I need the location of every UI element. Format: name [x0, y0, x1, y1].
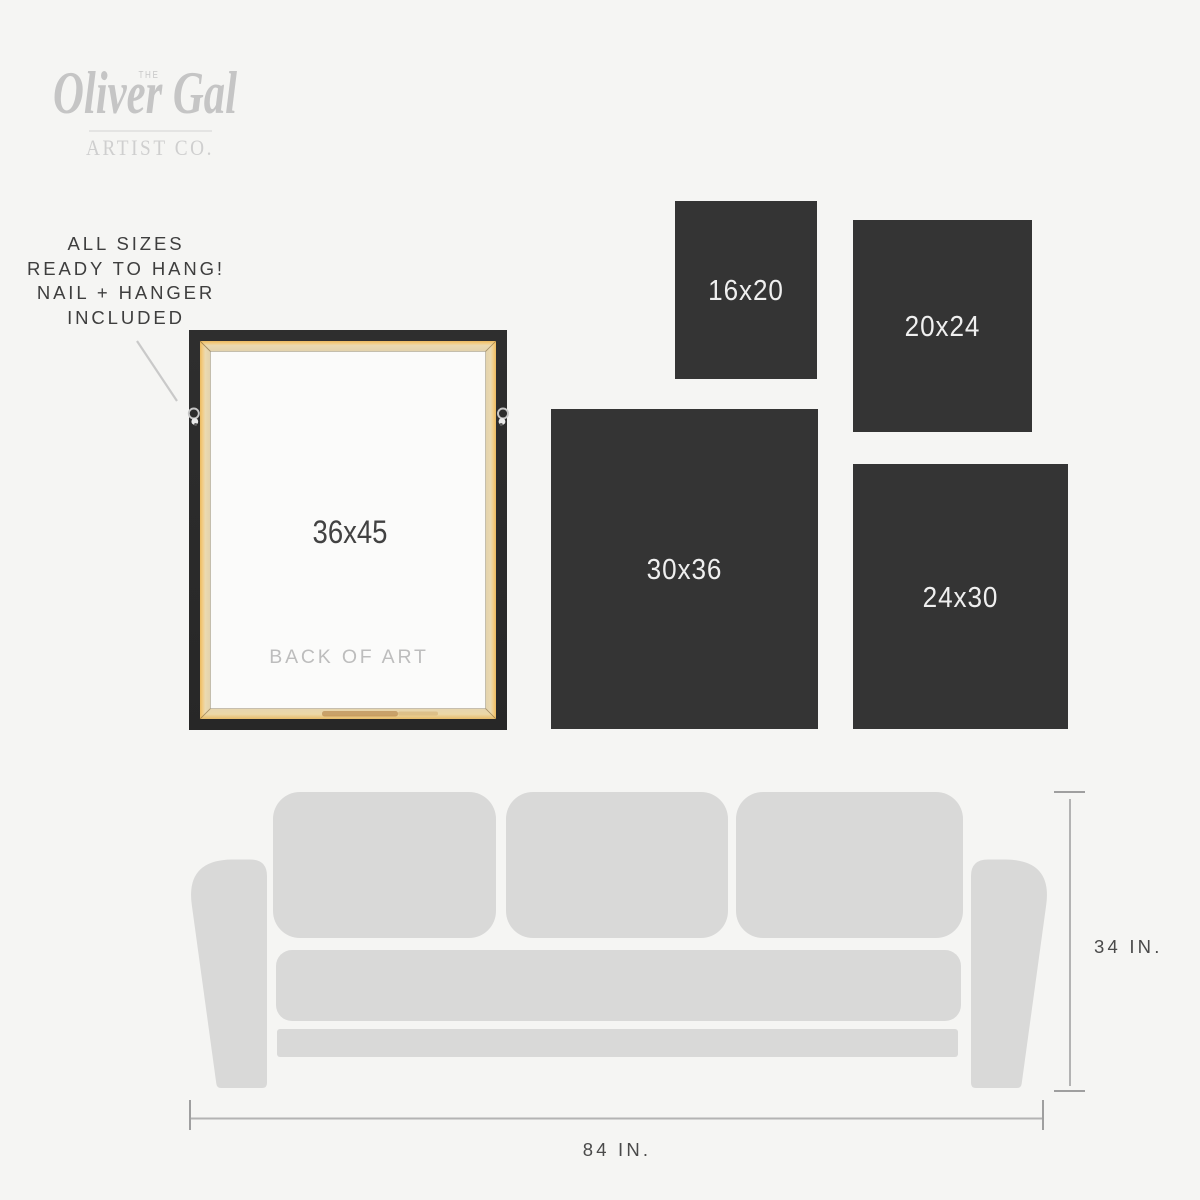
svg-text:THE: THE: [139, 70, 160, 81]
svg-text:ARTIST CO.: ARTIST CO.: [86, 135, 214, 160]
